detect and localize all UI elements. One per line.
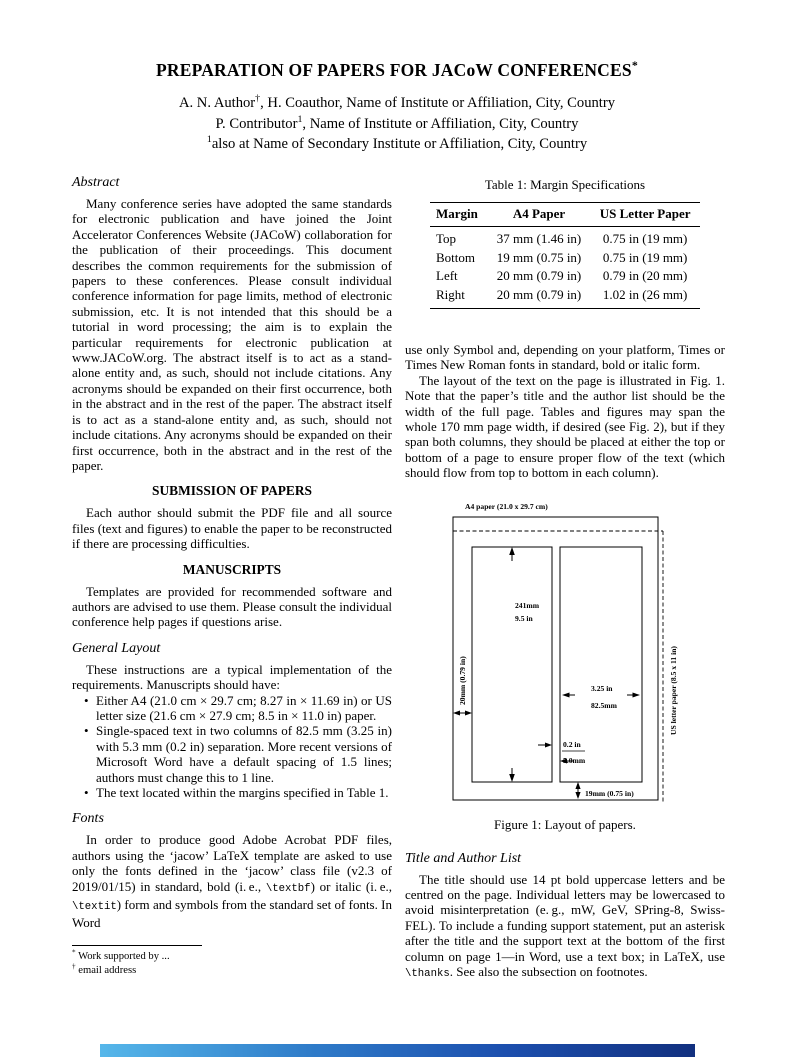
table-row: Bottom 19 mm (0.75 in) 0.75 in (19 mm) [430,249,700,268]
cell-top-label: Top [430,227,488,249]
footnote-rule [72,945,202,946]
right-column: Table 1: Margin Specifications Margin A4… [405,175,725,983]
col-width-arrow-left [562,692,570,697]
gutter-in-label: 0.2 in [563,740,582,749]
cell-right-a4: 20 mm (0.79 in) [488,286,590,309]
author-line-2: P. Contributor1, Name of Institute or Af… [0,114,794,135]
author-list: A. N. Author†, H. Coauthor, Name of Inst… [0,93,794,155]
general-layout-bullets: Either A4 (21.0 cm × 29.7 cm; 8.27 in × … [72,693,392,801]
col-width-in-label: 3.25 in [591,684,613,693]
footnote-email-text: email address [78,965,136,976]
general-layout-intro: These instructions are a typical impleme… [72,662,392,693]
right-para-layout: The layout of the text on the page is il… [405,373,725,481]
paper-title: PREPARATION OF PAPERS FOR JACoW CONFEREN… [0,60,794,81]
author-line-1: A. N. Author†, H. Coauthor, Name of Inst… [0,93,794,114]
general-layout-heading: General Layout [72,641,392,657]
bullet-paper-size: Either A4 (21.0 cm × 29.7 cm; 8.27 in × … [96,693,392,724]
figure-caption: Figure 1: Layout of papers. [405,817,725,833]
bottom-margin-arrow-up [575,782,580,789]
bullet-columns: Single-spaced text in two columns of 82.… [96,723,392,785]
col-width-arrow-right [633,692,641,697]
col-header-usletter: US Letter Paper [590,203,700,227]
bottom-gradient-bar [100,1044,695,1057]
footnote-marker-dagger: † [72,962,76,970]
cell-left-a4: 20 mm (0.79 in) [488,267,590,286]
cell-right-us: 1.02 in (26 mm) [590,286,700,309]
bottom-margin-arrow-down [575,792,580,799]
col-height-mm-label: 241mm [515,601,540,610]
col-height-in-label: 9.5 in [515,614,534,623]
title-author-list-text: The title should use 14 pt bold uppercas… [405,872,725,983]
footnote-marker-asterisk: * [72,948,76,956]
a4-outline [453,517,658,800]
manuscripts-text: Templates are provided for recommended s… [72,584,392,630]
paper-header: PREPARATION OF PAPERS FOR JACoW CONFEREN… [0,60,794,155]
cell-top-us: 0.75 in (19 mm) [590,227,700,249]
cell-left-label: Left [430,267,488,286]
cell-bottom-label: Bottom [430,249,488,268]
fonts-text: In order to produce good Adobe Acrobat P… [72,832,392,930]
a4-paper-label: A4 paper (21.0 x 29.7 cm) [465,502,548,511]
left-margin-label: 20mm (0.79 in) [458,655,467,704]
left-margin-arrow-left [453,710,460,715]
col-header-a4: A4 Paper [488,203,590,227]
gutter-mm-label: 5.0mm [563,756,586,765]
table-row: Top 37 mm (1.46 in) 0.75 in (19 mm) [430,227,700,249]
left-column-rect [472,547,552,782]
submission-text: Each author should submit the PDF file a… [72,505,392,551]
us-letter-paper-label: US letter paper (8.5 x 11 in) [669,645,678,734]
footnote-funding: * Work supported by ... [72,950,392,964]
cell-bottom-us: 0.75 in (19 mm) [590,249,700,268]
abstract-text: Many conference series have adopted the … [72,196,392,473]
abstract-heading: Abstract [72,175,392,191]
col-header-margin: Margin [430,203,488,227]
figure-1: A4 paper (21.0 x 29.7 cm) US letter pape… [405,495,725,833]
height-arrow-up [509,547,515,555]
bullet-margins: The text located within the margins spec… [96,785,392,800]
table-row: Right 20 mm (0.79 in) 1.02 in (26 mm) [430,286,700,309]
layout-diagram: A4 paper (21.0 x 29.7 cm) US letter pape… [405,495,725,807]
left-margin-arrow-right [465,710,472,715]
title-author-list-heading: Title and Author List [405,851,725,867]
table-header-row: Margin A4 Paper US Letter Paper [430,203,700,227]
manuscripts-heading: MANUSCRIPTS [72,562,392,578]
footnote-block: * Work supported by ... † email address [72,945,392,978]
cell-top-a4: 37 mm (1.46 in) [488,227,590,249]
table-row: Left 20 mm (0.79 in) 0.79 in (20 mm) [430,267,700,286]
footnote-funding-text: Work supported by ... [78,951,170,962]
bottom-margin-label: 19mm (0.75 in) [585,789,634,798]
left-column: Abstract Many conference series have ado… [72,175,392,978]
margin-table: Margin A4 Paper US Letter Paper Top 37 m… [430,202,700,309]
cell-bottom-a4: 19 mm (0.75 in) [488,249,590,268]
col-width-mm-label: 82.5mm [591,701,618,710]
author-line-3: 1also at Name of Secondary Institute or … [0,134,794,155]
fonts-heading: Fonts [72,811,392,827]
cell-right-label: Right [430,286,488,309]
height-arrow-down [509,774,515,782]
paper-page: PREPARATION OF PAPERS FOR JACoW CONFEREN… [0,0,794,1057]
submission-heading: SUBMISSION OF PAPERS [72,483,392,499]
right-para-fonts-continued: use only Symbol and, depending on your p… [405,342,725,373]
gutter-arrow-right [545,742,552,747]
table-caption: Table 1: Margin Specifications [405,177,725,193]
footnote-email: † email address [72,964,392,978]
cell-left-us: 0.79 in (20 mm) [590,267,700,286]
